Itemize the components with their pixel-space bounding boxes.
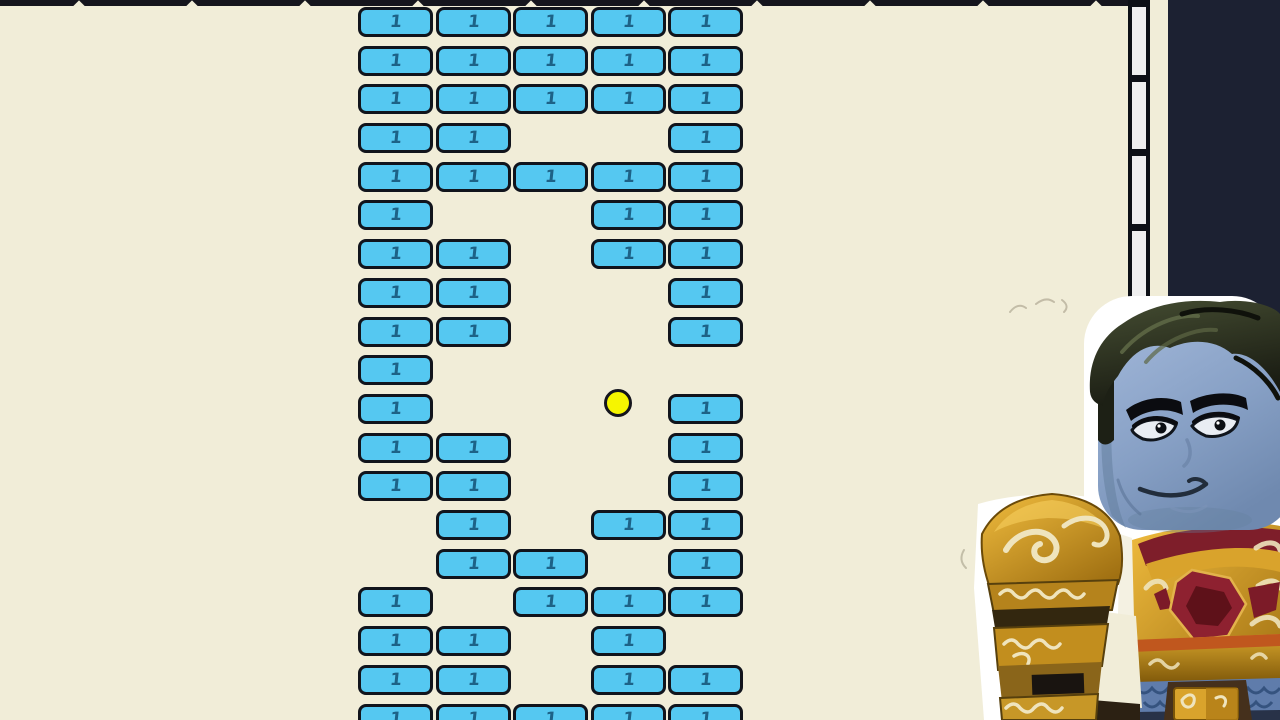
brick: 1: [668, 162, 743, 192]
brick: 1: [358, 665, 433, 695]
brick: 1: [358, 471, 433, 501]
brick-value: 1: [467, 517, 481, 534]
brick: 1: [436, 46, 511, 76]
brick-value: 1: [389, 53, 403, 70]
wall-notch: [299, 0, 310, 11]
brick: 1: [591, 510, 666, 540]
brick: 1: [668, 278, 743, 308]
brick: 1: [668, 665, 743, 695]
brick: 1: [436, 278, 511, 308]
brick-value: 1: [389, 711, 403, 720]
brick: 1: [358, 84, 433, 114]
right-wall-segment: [1132, 156, 1146, 224]
brick-value: 1: [389, 440, 403, 457]
brick: 1: [591, 200, 666, 230]
brick: 1: [358, 123, 433, 153]
brick: 1: [668, 84, 743, 114]
brick: 1: [436, 84, 511, 114]
brick-value: 1: [622, 633, 636, 650]
brick-value: 1: [467, 246, 481, 263]
brick-value: 1: [389, 91, 403, 108]
brick: 1: [668, 471, 743, 501]
brick-value: 1: [467, 53, 481, 70]
brick: 1: [358, 7, 433, 37]
brick: 1: [358, 433, 433, 463]
brick-value: 1: [467, 556, 481, 573]
brick-value: 1: [622, 517, 636, 534]
brick-value: 1: [699, 672, 713, 689]
brick: 1: [591, 665, 666, 695]
brick-value: 1: [467, 14, 481, 31]
brick-value: 1: [389, 246, 403, 263]
brick-value: 1: [699, 594, 713, 611]
brick: 1: [358, 200, 433, 230]
brick: 1: [591, 239, 666, 269]
brick-value: 1: [544, 169, 558, 186]
right-wall-segment: [1132, 7, 1146, 75]
brick-value: 1: [699, 556, 713, 573]
brick: 1: [358, 355, 433, 385]
brick-value: 1: [389, 362, 403, 379]
brick: 1: [436, 626, 511, 656]
brick-value: 1: [622, 91, 636, 108]
brick: 1: [358, 46, 433, 76]
brick-value: 1: [389, 207, 403, 224]
brick-value: 1: [699, 207, 713, 224]
brick-value: 1: [699, 14, 713, 31]
brick-value: 1: [699, 53, 713, 70]
wall-notch: [1090, 0, 1101, 11]
brick: 1: [436, 549, 511, 579]
wall-notch: [751, 0, 762, 11]
brick-value: 1: [389, 478, 403, 495]
brick-value: 1: [622, 594, 636, 611]
brick: 1: [436, 704, 511, 720]
brick: 1: [513, 84, 588, 114]
brick-value: 1: [699, 401, 713, 418]
brick-value: 1: [544, 556, 558, 573]
wall-notch: [977, 0, 988, 11]
brick-value: 1: [544, 53, 558, 70]
brick-value: 1: [699, 130, 713, 147]
right-wall-segment: [1132, 82, 1146, 150]
brick: 1: [591, 587, 666, 617]
brick: 1: [591, 7, 666, 37]
brick-value: 1: [467, 672, 481, 689]
brick-value: 1: [389, 672, 403, 689]
brick: 1: [668, 317, 743, 347]
brick: 1: [591, 46, 666, 76]
brick-value: 1: [389, 324, 403, 341]
avatar-head: [1090, 301, 1280, 533]
brick-value: 1: [544, 14, 558, 31]
brick-value: 1: [699, 169, 713, 186]
brick: 1: [436, 510, 511, 540]
brick: 1: [358, 278, 433, 308]
brick-value: 1: [544, 594, 558, 611]
brick: 1: [668, 510, 743, 540]
brick: 1: [668, 549, 743, 579]
brick-value: 1: [389, 14, 403, 31]
brick-value: 1: [544, 91, 558, 108]
brick: 1: [668, 704, 743, 720]
brick-value: 1: [699, 478, 713, 495]
brick-value: 1: [699, 517, 713, 534]
brick: 1: [436, 433, 511, 463]
brick: 1: [436, 162, 511, 192]
brick: 1: [668, 46, 743, 76]
brick: 1: [436, 665, 511, 695]
brick-value: 1: [622, 672, 636, 689]
game-screen: 1111111111111111111111111111111111111111…: [0, 0, 1280, 720]
brick-value: 1: [699, 246, 713, 263]
brick: 1: [436, 123, 511, 153]
brick: 1: [436, 7, 511, 37]
brick: 1: [591, 84, 666, 114]
brick: 1: [358, 394, 433, 424]
brick-value: 1: [622, 207, 636, 224]
brick-value: 1: [622, 53, 636, 70]
brick-value: 1: [699, 440, 713, 457]
brick-value: 1: [622, 711, 636, 720]
torso-armor: [1129, 523, 1280, 720]
brick: 1: [358, 162, 433, 192]
brick-value: 1: [467, 130, 481, 147]
brick-value: 1: [699, 324, 713, 341]
brick-value: 1: [467, 169, 481, 186]
brick: 1: [668, 239, 743, 269]
brick: 1: [358, 704, 433, 720]
brick-value: 1: [467, 478, 481, 495]
brick: 1: [358, 587, 433, 617]
brick-value: 1: [467, 324, 481, 341]
brick-value: 1: [467, 633, 481, 650]
top-wall: [0, 0, 1128, 6]
brick: 1: [358, 239, 433, 269]
brick-value: 1: [467, 440, 481, 457]
brick-value: 1: [622, 169, 636, 186]
brick-value: 1: [467, 91, 481, 108]
brick-value: 1: [389, 169, 403, 186]
brick: 1: [591, 626, 666, 656]
brick: 1: [668, 200, 743, 230]
brick: 1: [513, 162, 588, 192]
brick-value: 1: [467, 711, 481, 720]
ball: [604, 389, 632, 417]
brick: 1: [668, 433, 743, 463]
brick: 1: [436, 239, 511, 269]
wall-notch: [73, 0, 84, 11]
brick: 1: [513, 587, 588, 617]
brick: 1: [591, 704, 666, 720]
brick: 1: [591, 162, 666, 192]
brick: 1: [436, 317, 511, 347]
wall-notch: [864, 0, 875, 11]
brick-value: 1: [622, 14, 636, 31]
brick: 1: [358, 317, 433, 347]
brick: 1: [513, 704, 588, 720]
brick-value: 1: [389, 285, 403, 302]
brick-value: 1: [699, 91, 713, 108]
brick-value: 1: [389, 633, 403, 650]
brick: 1: [513, 46, 588, 76]
brick-value: 1: [389, 130, 403, 147]
brick: 1: [513, 549, 588, 579]
brick-value: 1: [699, 285, 713, 302]
brick-value: 1: [389, 401, 403, 418]
roblox-character: [940, 288, 1280, 720]
brick-value: 1: [467, 285, 481, 302]
brick: 1: [668, 394, 743, 424]
wall-notch: [186, 0, 197, 11]
brick: 1: [668, 7, 743, 37]
brick: 1: [513, 7, 588, 37]
brick: 1: [358, 626, 433, 656]
brick: 1: [668, 587, 743, 617]
brick-value: 1: [622, 246, 636, 263]
brick-value: 1: [544, 711, 558, 720]
brick: 1: [668, 123, 743, 153]
brick-value: 1: [699, 711, 713, 720]
brick-value: 1: [389, 594, 403, 611]
brick: 1: [436, 471, 511, 501]
